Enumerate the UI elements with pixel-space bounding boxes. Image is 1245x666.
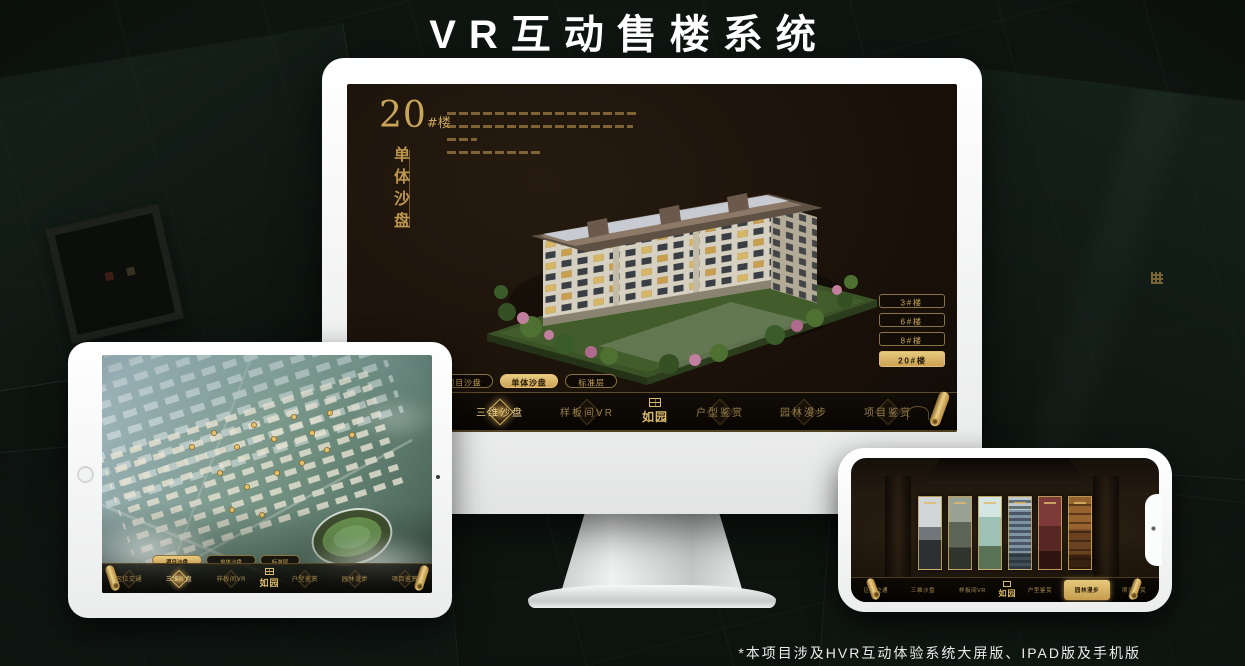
brand-logo: 如园 — [259, 568, 279, 589]
nav-item-garden-walk[interactable]: 园林漫步 — [1064, 580, 1110, 600]
nav-item-showroom-vr[interactable]: 样板间VR — [947, 580, 998, 600]
nav-item-floorplan[interactable]: 户型鉴赏 — [1017, 580, 1063, 600]
nav-item-garden-walk[interactable]: 园林漫步 — [331, 568, 379, 590]
monitor-stand-base — [528, 585, 776, 608]
nav-item-3d-sandbox[interactable]: 三维沙盘 — [900, 580, 946, 600]
tablet-camera — [436, 475, 440, 479]
tablet-home-button — [77, 466, 94, 483]
promo-poster: VR互动售楼系统 20#楼 单体沙盘 — [0, 0, 1245, 666]
subtab-standard-floor[interactable]: 标准层 — [565, 374, 617, 388]
brand-seal-icon — [1003, 581, 1011, 587]
nav-item-project-view[interactable]: 项目鉴赏 — [856, 399, 920, 425]
gallery-panel[interactable] — [1038, 496, 1062, 570]
footnote-text: *本项目涉及HVR互动体验系统大屏版、IPAD版及手机版 — [738, 643, 1141, 663]
phone-device: 区位交通 三维沙盘 样板间VR 如园 户型鉴赏 园林漫步 项目鉴赏 — [838, 448, 1172, 612]
building-button-3[interactable]: 3#楼 — [879, 294, 945, 308]
building-3d-model — [479, 142, 879, 386]
building-button-6[interactable]: 6#楼 — [879, 313, 945, 327]
interior-column — [1093, 476, 1119, 578]
tablet-navbar: 区位交通 三维沙盘 样板间VR 如园 户型鉴赏 园林漫步 项目鉴赏 — [102, 563, 432, 593]
tablet-screen: 项目沙盘 单体沙盘 标准层 区位交通 三维沙盘 样板间VR 如园 户型鉴赏 园林… — [102, 355, 432, 593]
sandbox-subtabs: 项目沙盘 单体沙盘 标准层 — [435, 374, 617, 388]
nav-item-showroom-vr[interactable]: 样板间VR — [552, 399, 622, 425]
subtab-single-sandbox[interactable]: 单体沙盘 — [500, 374, 558, 388]
phone-screen: 区位交通 三维沙盘 样板间VR 如园 户型鉴赏 园林漫步 项目鉴赏 — [851, 458, 1159, 602]
page-title: VR互动售楼系统 — [0, 2, 1245, 60]
gallery-panel[interactable] — [1068, 496, 1092, 570]
building-subtitle: 单体沙盘 — [387, 146, 411, 234]
interior-ceiling — [925, 458, 1085, 484]
nav-item-showroom-vr[interactable]: 样板间VR — [205, 568, 258, 590]
nav-item-3d-sandbox[interactable]: 三维沙盘 — [155, 568, 203, 590]
nav-item-3d-sandbox[interactable]: 三维沙盘 — [468, 399, 532, 425]
gallery-panel[interactable] — [948, 496, 972, 570]
phone-notch — [1145, 494, 1162, 566]
building-button-20[interactable]: 20#楼 — [879, 351, 945, 367]
gallery-panel[interactable] — [918, 496, 942, 570]
gallery-panel[interactable] — [1008, 496, 1032, 570]
brand-logo: 如园 — [998, 581, 1016, 599]
gallery-panel[interactable] — [978, 496, 1002, 570]
nav-item-floorplan[interactable]: 户型鉴赏 — [688, 399, 752, 425]
building-selector: 3#楼 6#楼 8#楼 20#楼 — [879, 294, 945, 372]
brand-seal-icon — [649, 398, 661, 407]
brand-logo: 如园 — [642, 398, 668, 425]
cloud-decoration — [352, 395, 432, 441]
subtitle-divider — [409, 150, 410, 228]
tablet-device: 项目沙盘 单体沙盘 标准层 区位交通 三维沙盘 样板间VR 如园 户型鉴赏 园林… — [68, 342, 452, 618]
scene-gallery — [918, 496, 1092, 570]
interior-column — [885, 476, 911, 578]
building-number: 20 — [379, 95, 427, 136]
building-title: 20#楼 — [379, 98, 451, 134]
nav-item-garden-walk[interactable]: 园林漫步 — [772, 399, 836, 425]
brand-seal-icon — [265, 568, 274, 575]
phone-navbar: 区位交通 三维沙盘 样板间VR 如园 户型鉴赏 园林漫步 项目鉴赏 — [851, 577, 1159, 602]
building-button-8[interactable]: 8#楼 — [879, 332, 945, 346]
nav-item-floorplan[interactable]: 户型鉴赏 — [281, 568, 329, 590]
monitor-stand — [562, 511, 742, 589]
